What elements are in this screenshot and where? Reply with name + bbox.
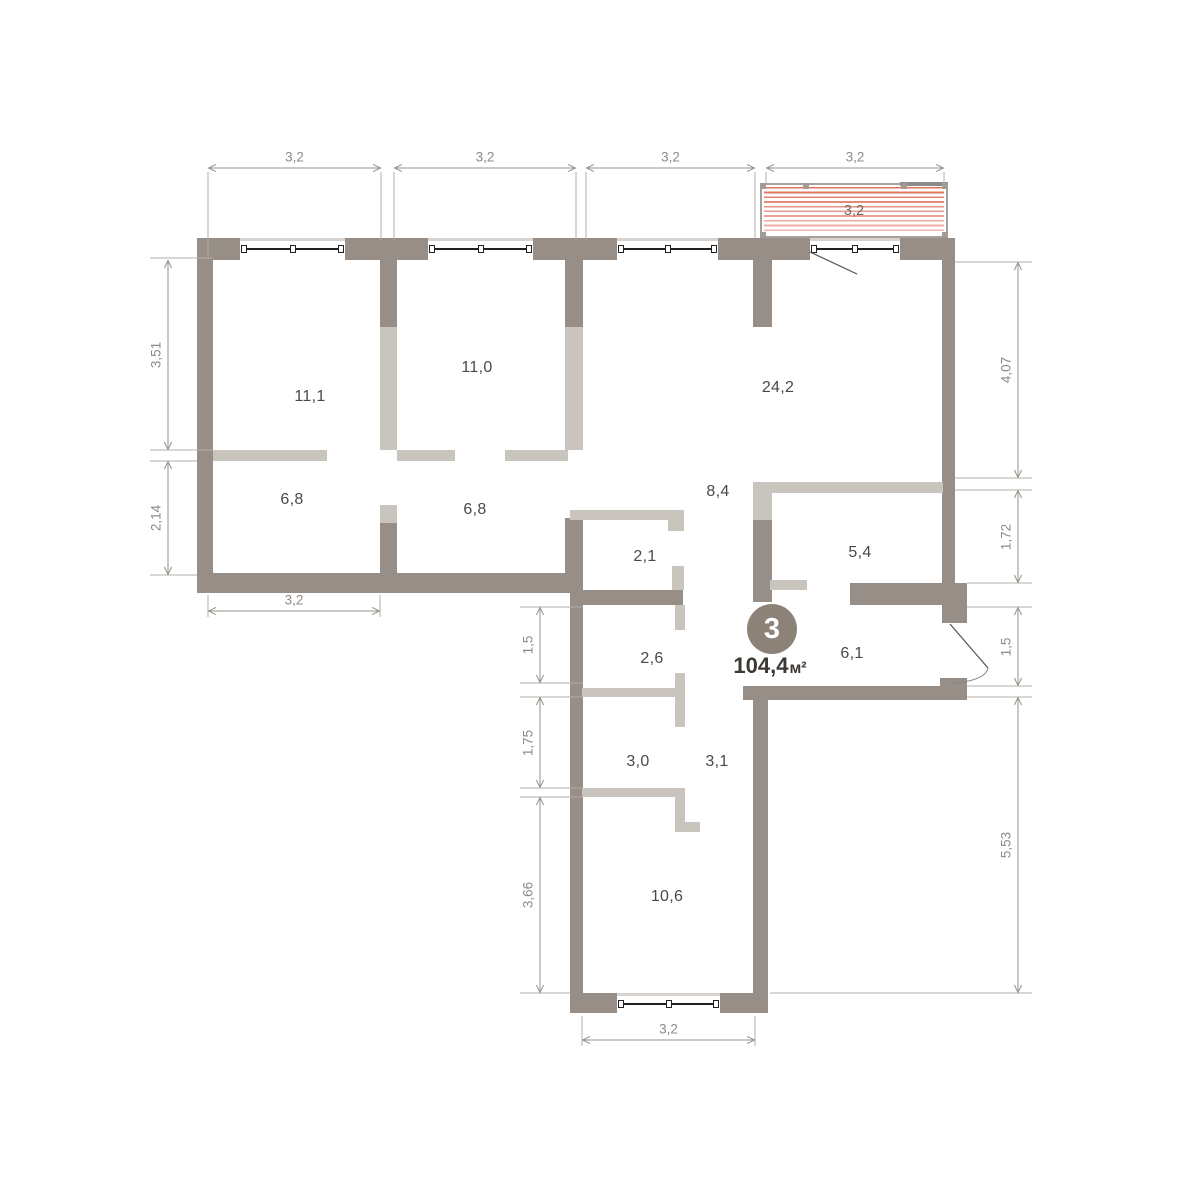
room-area-label: 5,4 — [848, 544, 871, 562]
window-sill — [617, 238, 718, 241]
dimension-label: 3,51 — [149, 342, 164, 368]
dimension-label: 1,72 — [999, 523, 1014, 549]
window-frame-cap — [241, 245, 247, 253]
wall-segment — [570, 993, 617, 1013]
wall-segment — [675, 822, 700, 832]
window-frame-cap — [893, 245, 899, 253]
dimension-label: 5,53 — [999, 832, 1014, 858]
window-symbol — [810, 238, 900, 260]
dimension-label: 3,2 — [661, 150, 680, 165]
dimension-arrow — [209, 164, 217, 171]
dimension-label: 3,2 — [659, 1022, 678, 1037]
room-area-label: 11,0 — [461, 359, 492, 377]
unit-area-label: 104,4м² — [697, 653, 843, 682]
room-area-label: 6,8 — [280, 491, 303, 509]
dimension-arrow — [164, 567, 171, 575]
balcony-rail — [900, 182, 948, 186]
room-area-label: 6,8 — [463, 501, 486, 519]
wall-segment — [900, 238, 955, 260]
window-sill — [428, 238, 533, 241]
window-frame-cap — [526, 245, 532, 253]
dimension-arrow — [936, 164, 944, 171]
window-frame-cap — [711, 245, 717, 253]
wall-segment — [582, 788, 677, 797]
window-sill — [240, 238, 345, 241]
balcony-post — [803, 183, 809, 189]
window-frame-cap — [665, 245, 671, 253]
room-area-label: 2,6 — [640, 650, 663, 668]
dimension-label: 1,5 — [521, 636, 536, 655]
wall-segment — [197, 238, 240, 260]
floor-plan-canvas: 3 104,4м² 3,23,23,23,23,23,512,143,21,51… — [0, 0, 1177, 1200]
wall-segment — [850, 583, 967, 605]
wall-segment — [577, 590, 683, 605]
dimension-label: 3,2 — [476, 150, 495, 165]
dimension-arrow — [164, 462, 171, 470]
wall-segment — [770, 580, 807, 590]
dimension-arrow — [164, 442, 171, 450]
wall-segment — [565, 327, 583, 450]
window-frame-cap — [478, 245, 484, 253]
window-symbol — [240, 238, 345, 260]
room-area-label: 10,6 — [651, 888, 683, 906]
room-area-label: 6,1 — [840, 645, 863, 663]
wall-segment — [345, 238, 428, 260]
window-sill — [810, 238, 900, 241]
window-symbol — [428, 238, 533, 260]
dimension-label: 2,14 — [149, 505, 164, 531]
unit-area-value: 104,4 — [733, 653, 788, 678]
dimension-arrow — [747, 164, 755, 171]
dimension-arrow — [209, 607, 217, 614]
dimension-label: 3,2 — [285, 150, 304, 165]
wall-segment — [942, 605, 967, 623]
dimension-label: 3,2 — [846, 150, 865, 165]
balcony-post — [760, 232, 766, 238]
dimension-arrow — [536, 675, 543, 683]
window-symbol — [617, 993, 720, 1013]
dimension-arrow — [1014, 985, 1021, 993]
room-area-label: 3,0 — [626, 753, 649, 771]
wall-segment — [570, 510, 673, 520]
wall-segment — [397, 450, 455, 461]
dimension-arrow — [536, 608, 543, 616]
wall-segment — [380, 260, 397, 327]
window-frame-cap — [429, 245, 435, 253]
wall-segment — [197, 573, 570, 593]
dimension-arrow — [1014, 470, 1021, 478]
wall-segment — [753, 700, 768, 1013]
window-frame-cap — [713, 1000, 719, 1008]
wall-segment — [380, 327, 397, 450]
dimension-arrow — [1014, 491, 1021, 499]
room-area-label: 2,1 — [633, 548, 656, 566]
window-sill — [617, 993, 720, 996]
dimension-arrow — [373, 164, 381, 171]
window-frame-cap — [618, 1000, 624, 1008]
balcony-post — [942, 232, 948, 238]
wall-segment — [675, 605, 685, 630]
window-frame-cap — [618, 245, 624, 253]
dimension-arrow — [1014, 263, 1021, 271]
window-frame-cap — [338, 245, 344, 253]
wall-segment — [763, 482, 943, 493]
dimension-arrow — [164, 261, 171, 269]
wall-segment — [380, 523, 397, 575]
dimension-arrow — [568, 164, 576, 171]
unit-area-unit: м² — [789, 660, 806, 677]
wall-segment — [565, 518, 583, 593]
dimension-label: 1,75 — [521, 729, 536, 755]
wall-segment — [582, 688, 675, 697]
balcony-post — [901, 183, 907, 189]
room-area-label: 3,1 — [705, 753, 728, 771]
balcony-post — [760, 183, 766, 189]
room-area-label: 8,4 — [706, 483, 729, 501]
wall-segment — [942, 260, 955, 585]
wall-segment — [380, 505, 397, 523]
room-area-label: 24,2 — [762, 379, 794, 397]
unit-number: 3 — [764, 613, 780, 646]
balcony-post — [942, 183, 948, 189]
dimension-label: 3,2 — [285, 593, 304, 608]
entry-door-leaf — [950, 624, 988, 668]
dimension-arrow — [1014, 678, 1021, 686]
dimension-label: 4,07 — [999, 357, 1014, 383]
wall-segment — [720, 993, 768, 1013]
dimension-arrow — [767, 164, 775, 171]
wall-segment — [570, 585, 583, 1013]
wall-segment — [213, 450, 327, 461]
wall-segment — [565, 260, 583, 327]
dimension-arrow — [536, 780, 543, 788]
dimension-label: 1,5 — [999, 637, 1014, 656]
balcony: 3,2 — [760, 183, 948, 238]
balcony-dimension-label: 3,2 — [762, 203, 946, 219]
dimension-arrow — [536, 985, 543, 993]
wall-segment — [672, 566, 684, 590]
dimension-arrow — [536, 698, 543, 706]
wall-segment — [675, 673, 685, 727]
dimension-arrow — [395, 164, 403, 171]
unit-number-badge: 3 — [747, 604, 797, 654]
dimension-arrow — [1014, 575, 1021, 583]
window-frame-cap — [666, 1000, 672, 1008]
window-frame-cap — [811, 245, 817, 253]
dimension-arrow — [1014, 698, 1021, 706]
dimension-arrow — [1014, 608, 1021, 616]
dimension-label: 3,66 — [521, 882, 536, 908]
dimension-arrow — [372, 607, 380, 614]
wall-segment — [668, 510, 684, 531]
room-area-label: 11,1 — [294, 388, 325, 406]
dimension-arrow — [536, 798, 543, 806]
wall-segment — [753, 238, 772, 327]
dimension-arrow — [587, 164, 595, 171]
wall-segment — [533, 238, 617, 260]
window-frame-cap — [290, 245, 296, 253]
wall-segment — [743, 686, 967, 700]
window-symbol — [617, 238, 718, 260]
wall-segment — [197, 260, 213, 593]
dimension-arrow — [747, 1036, 755, 1043]
window-frame-cap — [852, 245, 858, 253]
wall-segment — [505, 450, 568, 461]
dimension-arrow — [583, 1036, 591, 1043]
